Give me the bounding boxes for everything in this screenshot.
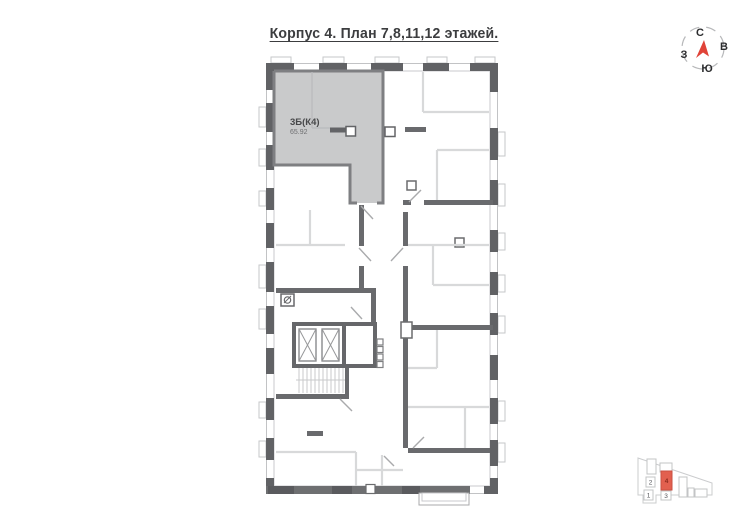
site-minimap: 2 1 3 4 [638,458,712,503]
floorplan-drawing: 3Б(К4) 65.92 [0,0,750,530]
apartment-area-label: 65.92 [290,129,308,136]
elevator-shaft-2 [322,329,339,361]
floorplan-page: Корпус 4. План 7,8,11,12 этажей. [0,0,750,530]
compass-rose: С В З Ю [681,27,728,75]
apartment-area-fill[interactable] [274,71,383,203]
facade-tabs-right [498,132,505,462]
apartment-wall-stub [330,128,346,133]
minimap-label-3: 3 [664,493,668,500]
minimap-building-a [647,459,656,474]
facade-tabs-top [271,57,495,63]
wall-bottom [266,485,498,506]
minimap-label-1: 1 [647,493,651,500]
minimap-building-e [695,489,707,497]
apartment-unit-3b-k4[interactable]: 3Б(К4) 65.92 [274,71,395,203]
service-shafts [377,339,383,368]
compass-north-label: С [696,27,704,39]
apartment-label: 3Б(К4) [290,117,320,128]
minimap-label-4: 4 [665,478,669,485]
compass-west-label: З [681,49,688,61]
elevator-shaft-1 [299,329,316,361]
minimap-label-2: 2 [649,480,653,487]
garbage-chute-icon [281,294,294,306]
minimap-building-d [688,488,694,497]
apartment-duct-box [346,127,356,137]
compass-east-label: В [720,41,728,53]
building-core [281,294,383,393]
minimap-building-c [679,477,687,497]
wall-piers-right [490,63,498,494]
compass-south-label: Ю [701,63,712,75]
plan-title: Корпус 4. План 7,8,11,12 этажей. [264,26,505,42]
apartment-duct-box-2 [385,127,395,137]
staircase [296,368,345,393]
facade-tabs-left [259,107,266,457]
compass-north-arrow-icon [696,40,709,58]
